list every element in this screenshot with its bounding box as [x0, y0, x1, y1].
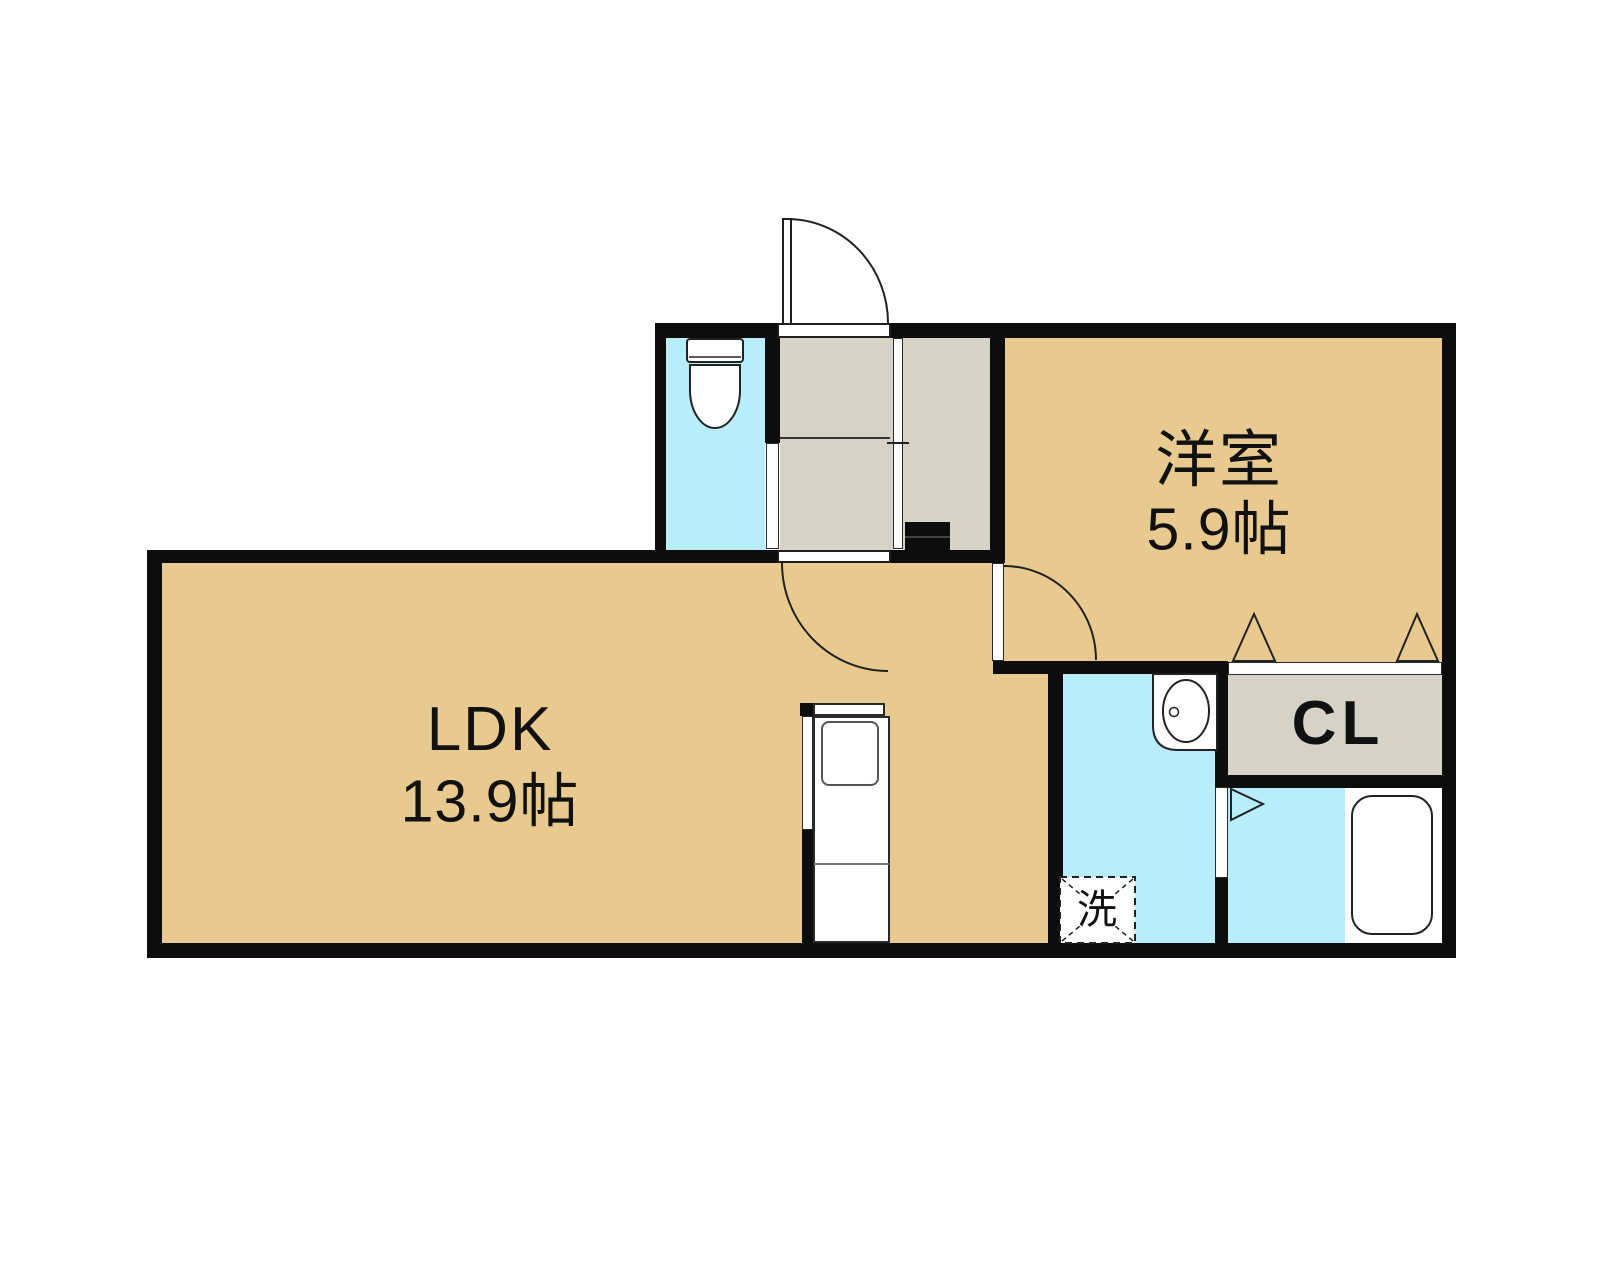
wall-left-outer — [147, 563, 162, 943]
wall-upper-left-outer — [655, 338, 666, 550]
bathroom-folding-door — [1215, 787, 1228, 878]
bathroom-floor — [1228, 788, 1345, 943]
wall-ldk-top-left — [147, 550, 777, 563]
kitchen-counter-top-band — [813, 703, 885, 716]
hall-floor — [903, 338, 990, 550]
laundry-label: 洗 — [1077, 890, 1117, 930]
toilet-room-floor — [665, 338, 765, 550]
ldk-room-label: LDK — [427, 699, 554, 761]
wall-right-outer — [1442, 323, 1456, 958]
kitchen-wall-stub-bottom — [802, 830, 813, 943]
ldk-size-label: 13.9帖 — [401, 773, 580, 832]
toilet-door — [766, 443, 779, 549]
wall-washroom-closet — [1215, 661, 1228, 787]
floor-plan-canvas: LDK 13.9帖 洋室 5.9帖 CL 洗 — [0, 0, 1600, 1280]
kitchen-side-opening — [802, 716, 813, 830]
wall-closet-bottom — [1215, 775, 1456, 788]
wall-ldk-top-right — [891, 550, 1005, 563]
wall-washroom-top — [993, 661, 1228, 674]
kitchen-counter — [813, 716, 890, 943]
bedroom-size-label: 5.9帖 — [1146, 501, 1291, 560]
closet-label: CL — [1292, 693, 1385, 755]
closet-door-track — [1228, 662, 1442, 675]
bathtub-area-floor — [1345, 788, 1442, 943]
bedroom-door-leaf — [992, 563, 1004, 661]
wall-ldk-washroom — [1048, 674, 1063, 943]
kitchen-wall-stub-top — [800, 703, 813, 716]
entrance-door-leaf — [782, 218, 792, 325]
entrance-door-swing — [787, 219, 888, 323]
wall-hall-bedroom — [990, 338, 1005, 563]
wall-toilet-partition — [765, 338, 780, 443]
entrance-door-opening — [777, 323, 891, 338]
entrance-step — [905, 522, 950, 550]
wall-top-right — [891, 323, 1456, 338]
wall-washroom-bath-lower — [1215, 878, 1228, 943]
entrance-genkan-floor — [780, 338, 893, 550]
hall-partition-strip — [893, 338, 903, 549]
ldk-floor — [162, 563, 1048, 943]
bedroom-room-label: 洋室 — [1155, 430, 1283, 492]
wall-bottom-outer — [147, 943, 1456, 958]
wall-top-left — [655, 323, 777, 338]
ldk-door-opening — [777, 550, 891, 563]
